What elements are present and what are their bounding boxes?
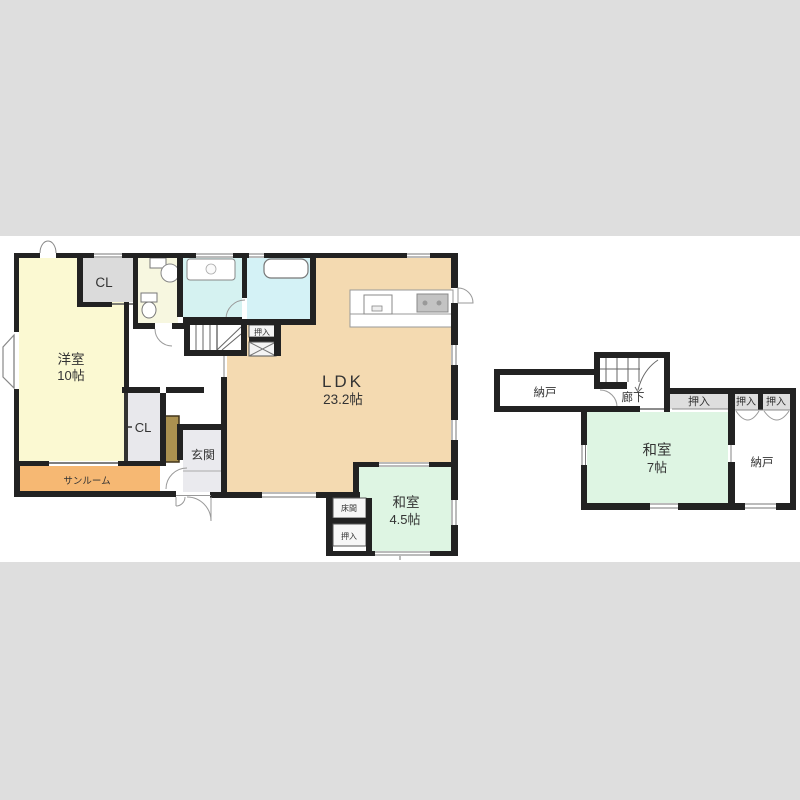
svg-text:10帖: 10帖 xyxy=(57,368,84,383)
svg-text:納戸: 納戸 xyxy=(751,456,774,469)
svg-text:和室: 和室 xyxy=(643,442,672,459)
svg-text:床間: 床間 xyxy=(341,503,357,513)
svg-text:和室: 和室 xyxy=(393,494,420,510)
svg-text:玄関: 玄関 xyxy=(191,447,215,462)
svg-text:23.2帖: 23.2帖 xyxy=(323,392,363,407)
svg-text:4.5帖: 4.5帖 xyxy=(389,512,420,527)
svg-text:納戸: 納戸 xyxy=(534,386,557,399)
svg-text:押入: 押入 xyxy=(766,395,786,408)
svg-text:押入: 押入 xyxy=(688,394,710,408)
svg-text:LDK: LDK xyxy=(322,372,364,391)
svg-text:CL: CL xyxy=(135,420,152,435)
svg-text:7帖: 7帖 xyxy=(647,460,667,475)
svg-text:サンルーム: サンルーム xyxy=(63,476,110,487)
svg-text:押入: 押入 xyxy=(736,395,756,408)
svg-text:押入: 押入 xyxy=(254,327,270,337)
svg-text:押入: 押入 xyxy=(341,531,357,541)
svg-text:CL: CL xyxy=(95,275,113,290)
svg-text:洋室: 洋室 xyxy=(58,351,85,367)
svg-text:廊下: 廊下 xyxy=(622,390,645,404)
